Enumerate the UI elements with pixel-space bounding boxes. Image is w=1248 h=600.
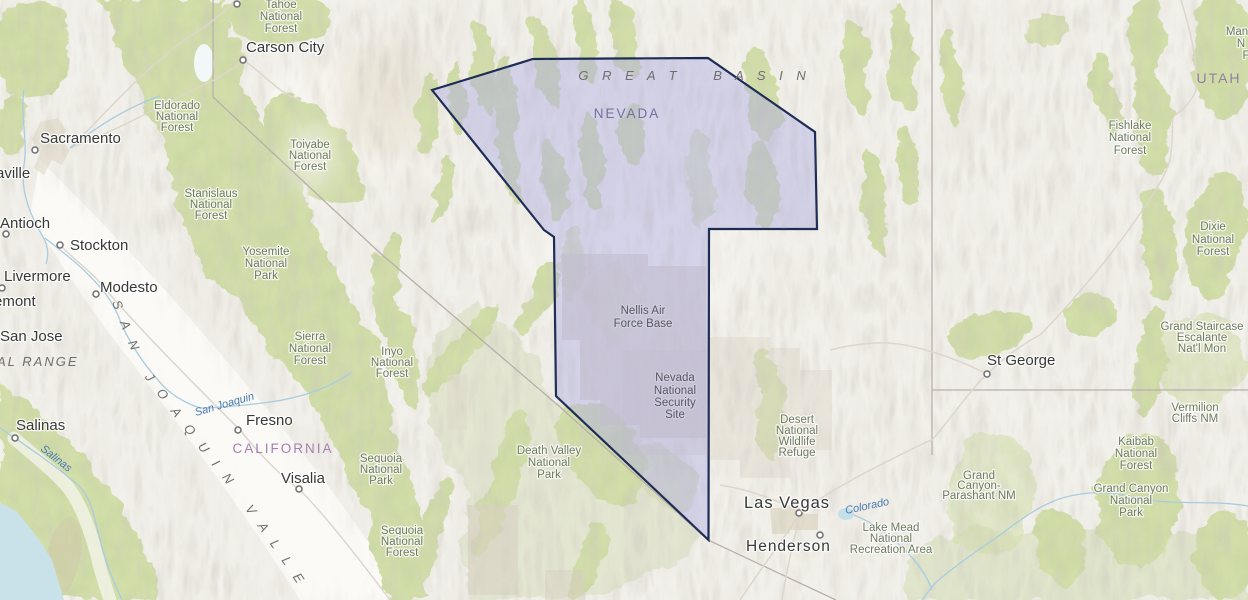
svg-text:National: National: [289, 343, 331, 355]
svg-text:Forest: Forest: [294, 161, 327, 173]
svg-text:CALIFORNIA: CALIFORNIA: [232, 441, 333, 456]
svg-text:Fresno: Fresno: [246, 412, 293, 429]
svg-text:B A S I N: B A S I N: [713, 68, 811, 83]
svg-text:UTAH: UTAH: [1196, 70, 1241, 86]
svg-text:Forest: Forest: [161, 122, 194, 134]
svg-text:Visalia: Visalia: [281, 470, 326, 487]
svg-text:Sacramento: Sacramento: [40, 130, 121, 147]
svg-text:Fishlake: Fishlake: [1109, 120, 1152, 132]
svg-text:Recreation Area: Recreation Area: [850, 544, 933, 556]
svg-text:National: National: [1110, 495, 1152, 507]
svg-text:Cliffs NM: Cliffs NM: [1172, 413, 1218, 425]
svg-text:Forest: Forest: [294, 355, 327, 367]
svg-text:National: National: [528, 457, 570, 469]
svg-text:Forest: Forest: [265, 23, 298, 35]
svg-text:F: F: [1242, 50, 1248, 62]
svg-text:Parashant NM: Parashant NM: [942, 490, 1016, 502]
svg-text:AL RANGE: AL RANGE: [0, 354, 79, 369]
svg-text:Death Valley: Death Valley: [517, 445, 582, 457]
svg-text:Henderson: Henderson: [746, 538, 831, 555]
svg-text:Nevada: Nevada: [655, 372, 695, 384]
svg-text:Forest: Forest: [376, 368, 409, 380]
svg-text:National: National: [1192, 234, 1234, 246]
svg-text:Forest: Forest: [1197, 246, 1230, 258]
svg-text:San Jose: San Jose: [0, 328, 63, 345]
svg-text:Refuge: Refuge: [778, 447, 815, 459]
svg-text:National: National: [1115, 448, 1157, 460]
svg-text:Park: Park: [254, 270, 278, 282]
svg-text:Tahoe: Tahoe: [265, 0, 296, 11]
svg-text:National: National: [260, 11, 302, 23]
svg-text:emont: emont: [0, 293, 37, 310]
svg-text:St George: St George: [987, 352, 1055, 369]
svg-text:Forest: Forest: [1120, 460, 1153, 472]
svg-text:Park: Park: [537, 469, 561, 481]
svg-text:Forest: Forest: [386, 547, 419, 559]
svg-text:Sierra: Sierra: [295, 331, 326, 343]
svg-text:Nat'l Mon: Nat'l Mon: [1178, 343, 1226, 355]
svg-text:Carson City: Carson City: [246, 39, 325, 56]
svg-text:Grand Canyon: Grand Canyon: [1094, 483, 1169, 495]
svg-text:Livermore: Livermore: [4, 268, 71, 285]
svg-text:Salinas: Salinas: [16, 417, 65, 434]
svg-text:National: National: [1109, 132, 1151, 144]
svg-text:Stockton: Stockton: [70, 237, 128, 254]
svg-text:Security: Security: [654, 397, 696, 409]
svg-text:Site: Site: [665, 409, 685, 421]
svg-text:Forest: Forest: [1114, 145, 1147, 157]
svg-text:Park: Park: [369, 475, 393, 487]
svg-text:Force Base: Force Base: [614, 318, 673, 330]
svg-text:Park: Park: [1119, 507, 1143, 519]
svg-text:Las Vegas: Las Vegas: [744, 494, 830, 512]
svg-text:Forest: Forest: [195, 210, 228, 222]
svg-text:NEVADA: NEVADA: [594, 106, 661, 121]
svg-text:N: N: [1237, 38, 1245, 50]
svg-text:Man: Man: [1226, 26, 1248, 38]
svg-text:Nellis Air: Nellis Air: [621, 305, 666, 317]
svg-text:Yosemite: Yosemite: [243, 246, 290, 258]
svg-text:G R E A T: G R E A T: [578, 68, 681, 83]
svg-text:Dixie: Dixie: [1200, 221, 1226, 233]
svg-text:National: National: [245, 258, 287, 270]
svg-text:Modesto: Modesto: [100, 279, 158, 296]
svg-text:aville: aville: [0, 165, 30, 182]
svg-text:Kaibab: Kaibab: [1118, 436, 1154, 448]
svg-text:National: National: [654, 385, 696, 397]
svg-text:Antioch: Antioch: [0, 215, 50, 232]
